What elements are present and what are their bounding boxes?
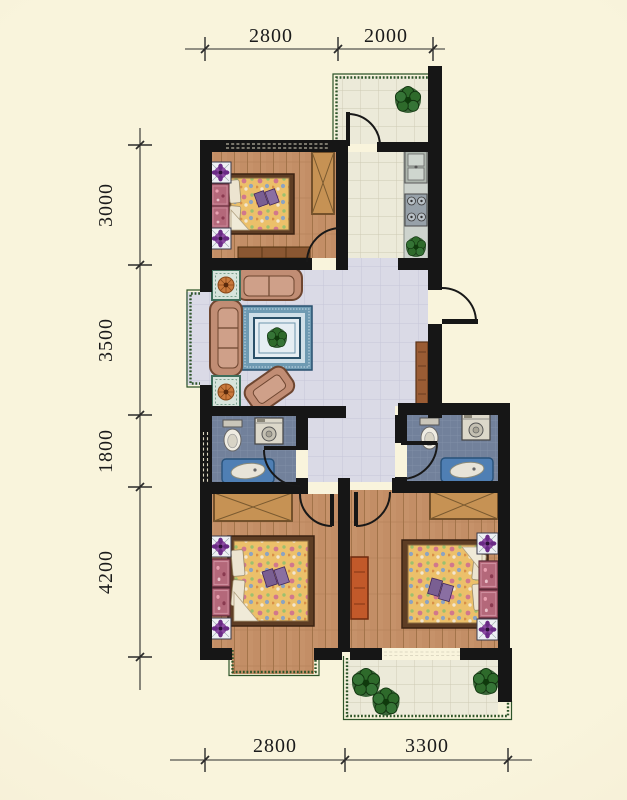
kitchen-furniture bbox=[404, 150, 428, 262]
dim-left-2: 3500 bbox=[95, 318, 117, 362]
end-table bbox=[212, 376, 240, 408]
pink-cabinet-icon bbox=[211, 206, 229, 228]
wardrobe bbox=[430, 491, 498, 519]
shoe-cabinet bbox=[416, 342, 428, 412]
dim-bottom-1: 2800 bbox=[253, 735, 297, 757]
dim-left-1: 3000 bbox=[95, 183, 117, 227]
flower-stand-icon bbox=[210, 162, 231, 183]
pillow bbox=[231, 550, 245, 577]
flower-stand-icon bbox=[477, 533, 498, 554]
tv-cabinet bbox=[238, 247, 310, 258]
dim-left-4: 4200 bbox=[95, 550, 117, 594]
flower-stand-icon bbox=[210, 618, 231, 639]
end-table bbox=[212, 270, 240, 300]
floor-plan-drawing: 2800 2000 3000 3500 1800 4200 2800 3300 bbox=[0, 0, 627, 800]
bed bbox=[228, 536, 314, 626]
flower-stand-icon bbox=[210, 536, 231, 557]
wardrobe bbox=[214, 493, 292, 521]
kitchen-opening-floor bbox=[348, 258, 398, 272]
floor-plan-canvas: 2800 2000 3000 3500 1800 4200 2800 3300 bbox=[0, 0, 627, 800]
rug-and-coffee-table bbox=[242, 306, 312, 370]
bed bbox=[402, 540, 488, 628]
pink-cabinet-icon bbox=[479, 561, 498, 589]
pink-cabinet-icon bbox=[211, 184, 229, 206]
wardrobe bbox=[312, 152, 334, 214]
washer-icon bbox=[255, 418, 283, 444]
flower-stand-icon bbox=[477, 619, 498, 640]
dim-left-3: 1800 bbox=[95, 429, 117, 473]
dim-top-1: 2800 bbox=[249, 25, 293, 47]
pink-cabinet-icon bbox=[479, 590, 498, 618]
dim-bottom-2: 3300 bbox=[405, 735, 449, 757]
bedroom-left-bay-floor bbox=[232, 648, 314, 674]
pink-cabinet-icon bbox=[212, 588, 230, 616]
entry-door bbox=[442, 288, 478, 324]
bed bbox=[226, 174, 294, 234]
balcony-slider-window bbox=[384, 652, 460, 656]
dim-top-2: 2000 bbox=[364, 25, 408, 47]
flower-stand-icon bbox=[210, 228, 231, 249]
bathtub-icon bbox=[441, 458, 493, 482]
washer-icon bbox=[462, 414, 490, 440]
toilet-icon bbox=[223, 420, 242, 451]
pink-cabinet-icon bbox=[212, 559, 230, 587]
sink-icon bbox=[405, 151, 427, 183]
stove-icon bbox=[405, 194, 427, 226]
